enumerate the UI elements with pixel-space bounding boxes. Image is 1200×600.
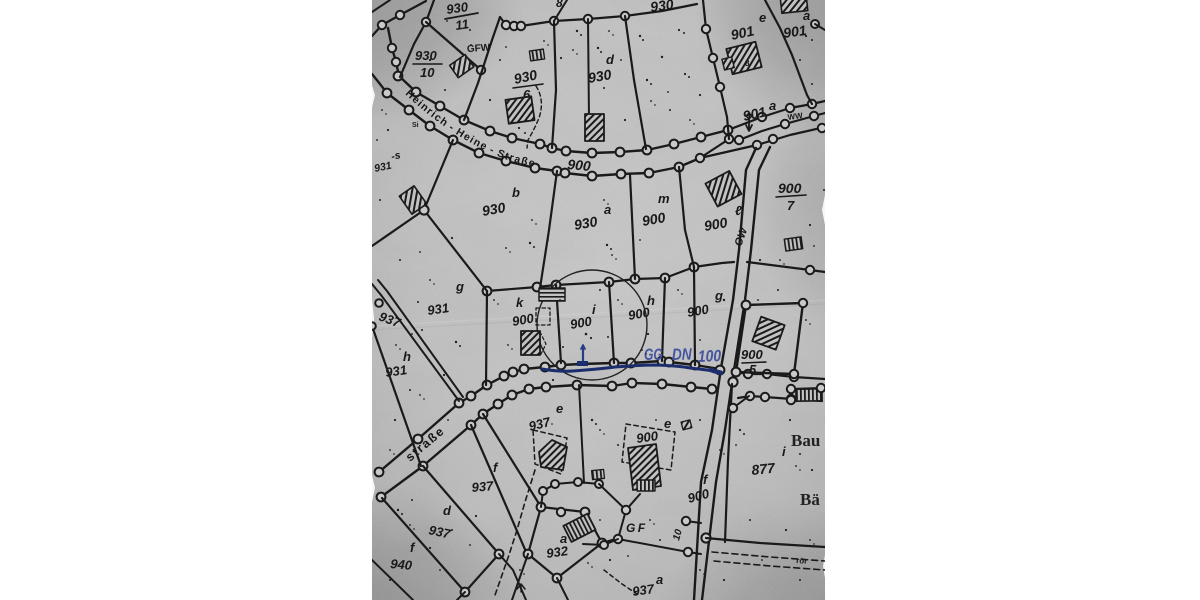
svg-text:d: d bbox=[443, 503, 452, 518]
svg-text:900: 900 bbox=[741, 347, 763, 362]
svg-text:rör: rör bbox=[796, 556, 808, 566]
svg-text:GFW: GFW bbox=[467, 42, 492, 55]
svg-text:a: a bbox=[769, 98, 776, 113]
svg-text:a: a bbox=[656, 572, 663, 587]
svg-text:G F: G F bbox=[626, 521, 646, 535]
svg-text:g: g bbox=[714, 288, 723, 303]
svg-text:8: 8 bbox=[556, 0, 563, 10]
svg-text:100: 100 bbox=[698, 347, 722, 366]
svg-text:900: 900 bbox=[567, 156, 592, 174]
svg-text:900: 900 bbox=[778, 180, 802, 196]
svg-text:DN: DN bbox=[672, 345, 693, 364]
svg-text:5: 5 bbox=[749, 362, 757, 377]
svg-text:937: 937 bbox=[631, 581, 655, 599]
svg-text:930: 930 bbox=[415, 48, 437, 63]
svg-text:e: e bbox=[556, 401, 563, 416]
svg-text:931: 931 bbox=[426, 300, 450, 318]
svg-text:877: 877 bbox=[751, 460, 777, 478]
svg-text:a: a bbox=[803, 8, 810, 23]
svg-text:b: b bbox=[512, 185, 520, 200]
svg-text:932: 932 bbox=[545, 543, 569, 561]
svg-text:d: d bbox=[606, 52, 615, 67]
svg-text:940: 940 bbox=[390, 556, 414, 573]
svg-text:7: 7 bbox=[787, 198, 795, 213]
svg-text:Bä: Bä bbox=[800, 490, 820, 509]
svg-text:901: 901 bbox=[782, 22, 808, 41]
svg-text:k: k bbox=[516, 295, 524, 310]
svg-text:Bau: Bau bbox=[791, 431, 820, 450]
svg-text:i: i bbox=[782, 444, 786, 459]
svg-text:m: m bbox=[658, 191, 670, 206]
svg-text:e: e bbox=[664, 416, 671, 431]
svg-text:11: 11 bbox=[454, 16, 469, 33]
svg-text:10: 10 bbox=[420, 65, 435, 80]
svg-text:Si: Si bbox=[412, 122, 419, 129]
svg-text:8: 8 bbox=[745, 59, 750, 68]
svg-text:i: i bbox=[592, 302, 596, 317]
svg-text:ℓ: ℓ bbox=[735, 203, 742, 218]
svg-text:GG: GG bbox=[644, 346, 663, 364]
svg-text:e: e bbox=[759, 10, 766, 25]
svg-text:937: 937 bbox=[471, 478, 495, 495]
svg-text:g: g bbox=[455, 279, 464, 294]
